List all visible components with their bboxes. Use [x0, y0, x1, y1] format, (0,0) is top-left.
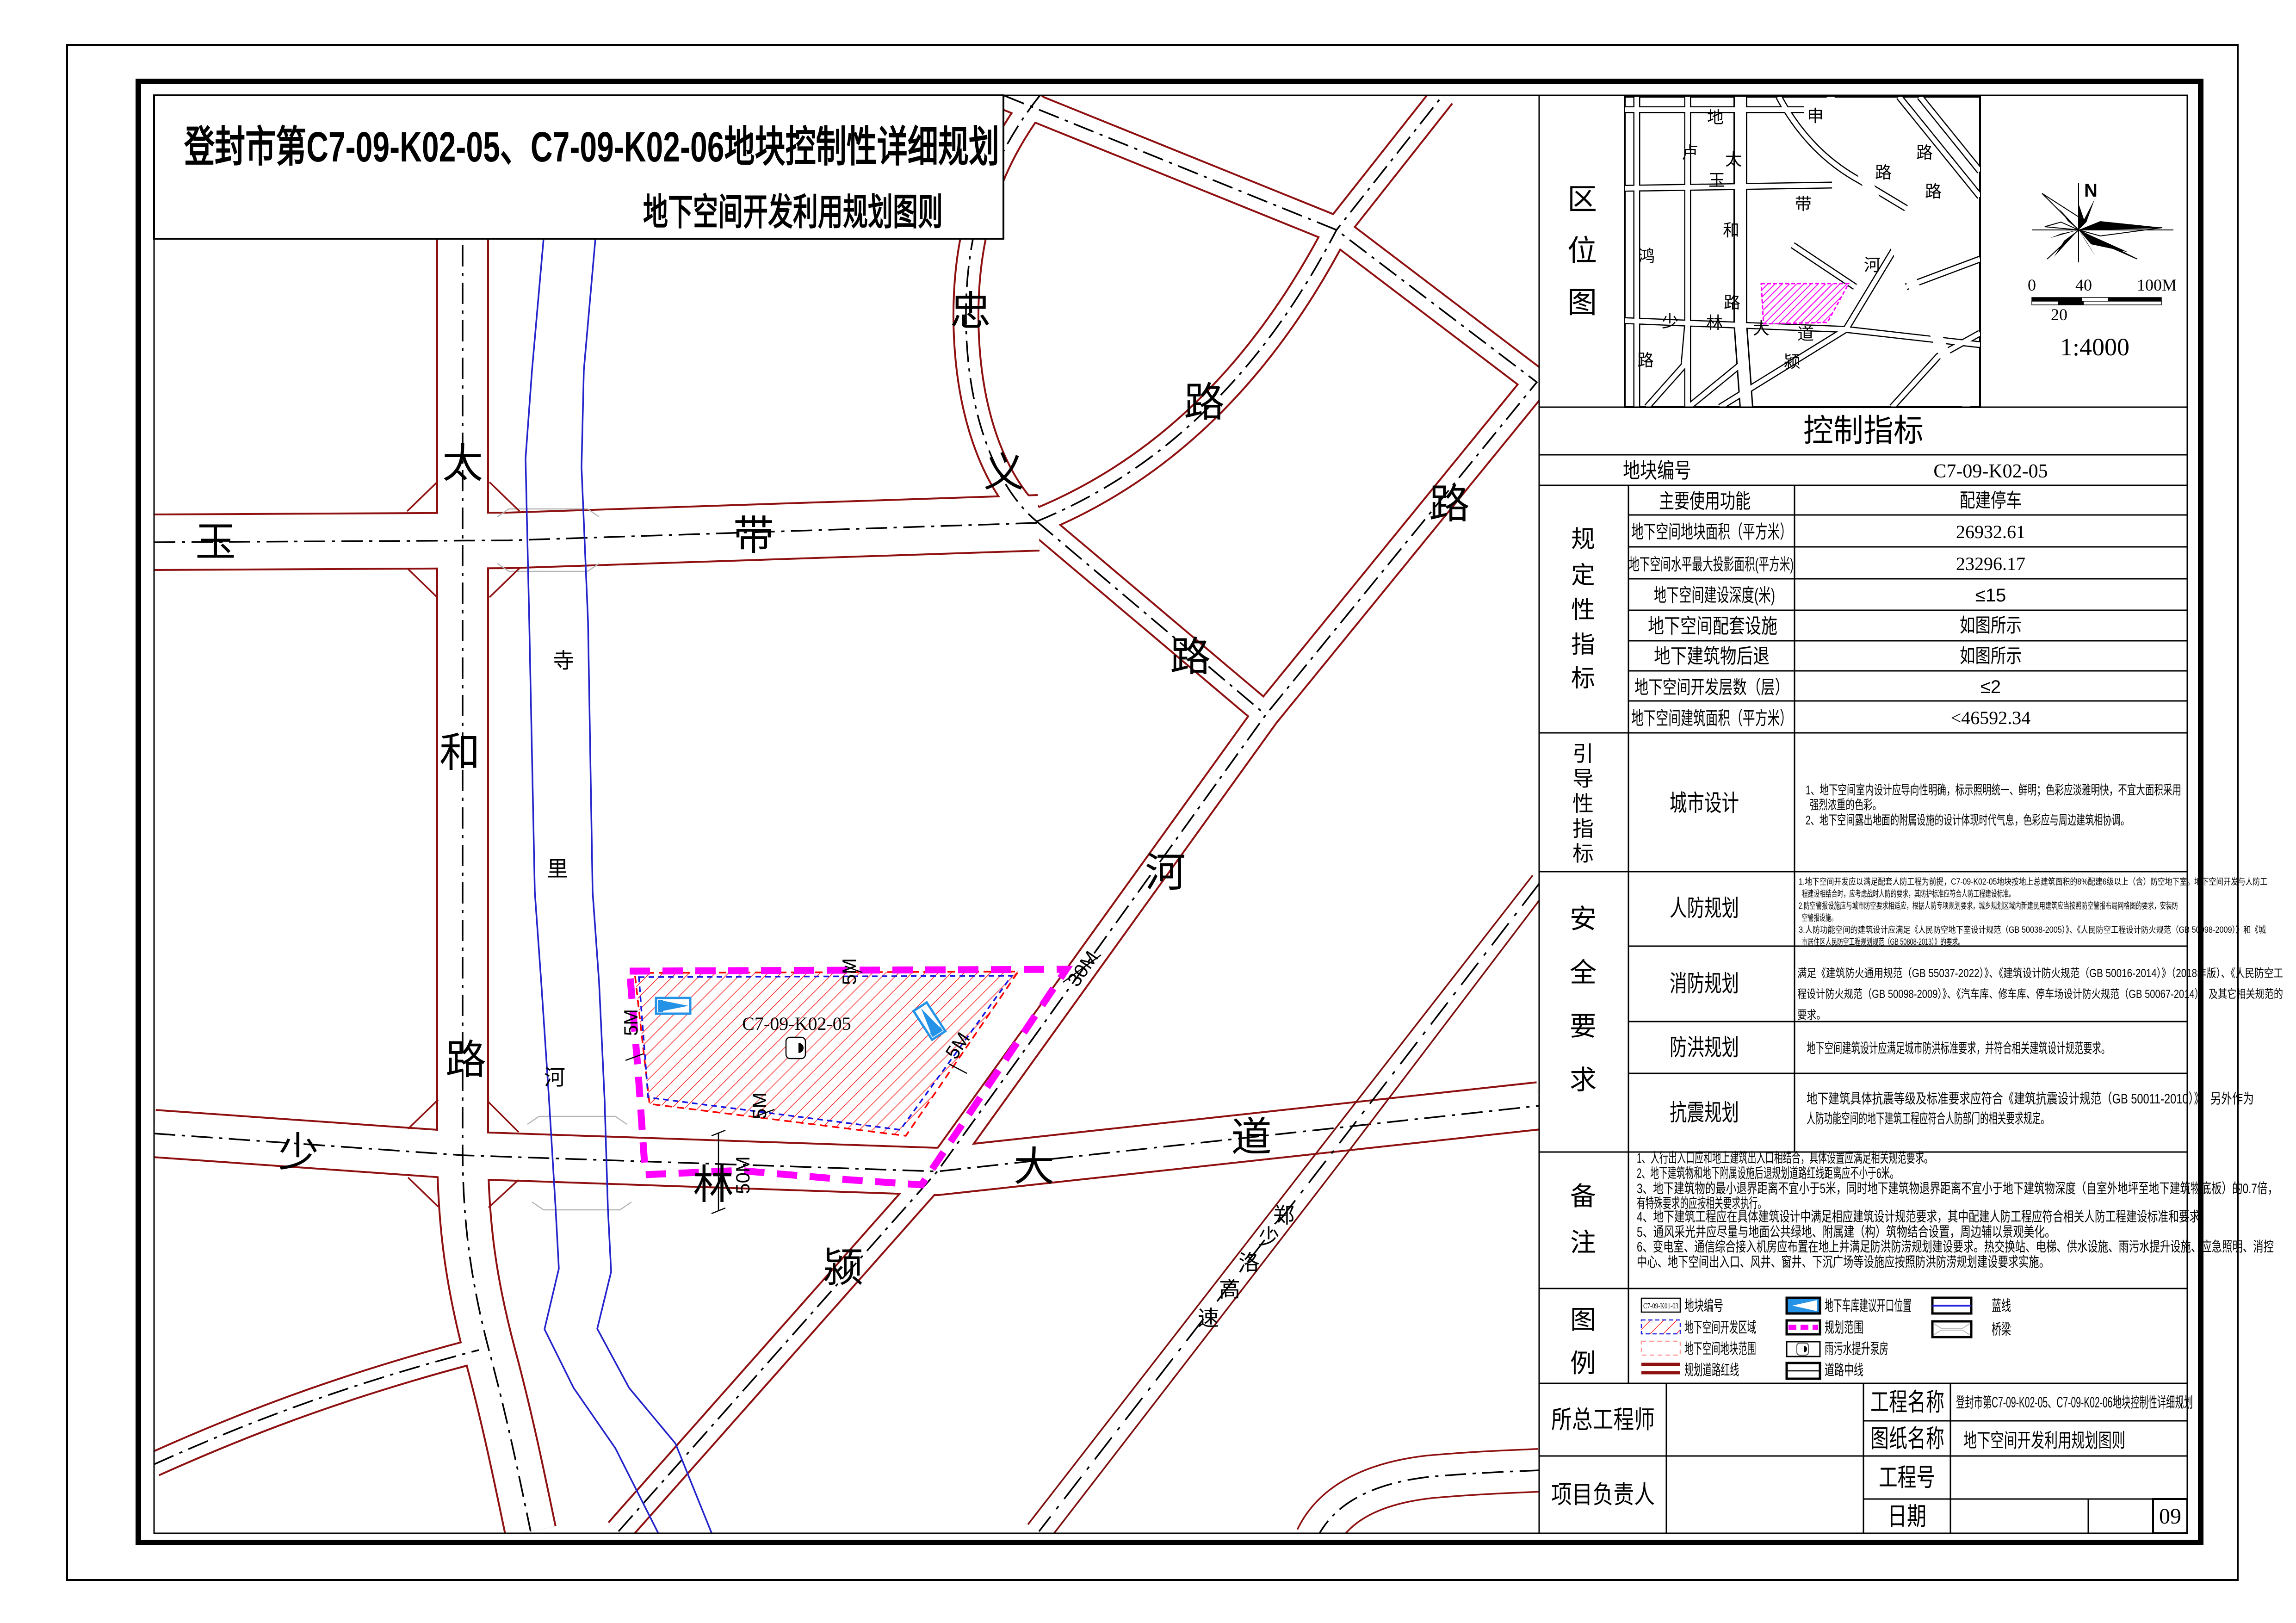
svg-text:高: 高	[1219, 1277, 1240, 1301]
svg-text:速: 速	[1198, 1306, 1219, 1330]
svg-text:市居住区人民防空工程规划规范（GB 50808-2013）》: 市居住区人民防空工程规划规范（GB 50808-2013）》的要求。	[1802, 937, 1964, 947]
svg-text:和: 和	[439, 730, 480, 775]
svg-text:路: 路	[1637, 351, 1654, 370]
svg-text:地下车库建议开口位置: 地下车库建议开口位置	[1825, 1297, 1912, 1314]
svg-text:地下空间开发利用规划图则: 地下空间开发利用规划图则	[643, 192, 943, 233]
svg-text:登封市第C7-09-K02-05、C7-09-K02-06地: 登封市第C7-09-K02-05、C7-09-K02-06地块控制性详细规划	[184, 124, 999, 171]
svg-text:规划范围: 规划范围	[1825, 1319, 1863, 1336]
svg-text:09: 09	[2159, 1504, 2181, 1529]
svg-text:太: 太	[442, 440, 483, 486]
svg-text:位: 位	[1567, 234, 1597, 267]
svg-text:桥梁: 桥梁	[1992, 1321, 2011, 1338]
svg-text:23296.17: 23296.17	[1956, 553, 2025, 574]
svg-text:颍: 颍	[1784, 352, 1801, 371]
svg-text:性: 性	[1571, 597, 1595, 624]
svg-text:河: 河	[1864, 255, 1881, 274]
svg-text:3、地下建筑物的最小退界距离不宜小于5米，同时地下建筑物退界: 3、地下建筑物的最小退界距离不宜小于5米，同时地下建筑物退界距离不宜小于地下建筑…	[1637, 1181, 2278, 1196]
svg-text:1.地下空间开发应以满足配套人防工程为前提，C7-09-K0: 1.地下空间开发应以满足配套人防工程为前提，C7-09-K02-05地块按地上总…	[1799, 877, 2267, 887]
svg-text:道路中线: 道路中线	[1825, 1362, 1863, 1378]
svg-text:控制指标: 控制指标	[1803, 413, 1924, 448]
svg-text:全: 全	[1570, 958, 1597, 988]
svg-text:配建停车: 配建停车	[1960, 489, 2022, 511]
svg-text:地下空间地块范围: 地下空间地块范围	[1684, 1340, 1756, 1357]
svg-text:图: 图	[1567, 286, 1597, 319]
svg-text:0: 0	[2028, 276, 2036, 294]
svg-text:抗震规划: 抗震规划	[1670, 1100, 1739, 1126]
svg-text:C7-09-K02-05: C7-09-K02-05	[742, 1013, 851, 1034]
svg-text:防洪规划: 防洪规划	[1670, 1035, 1739, 1060]
svg-text:地下空间建筑设计应满足城市防洪标准要求，并符合相关建筑设计规: 地下空间建筑设计应满足城市防洪标准要求，并符合相关建筑设计规范要求。	[1807, 1041, 2110, 1056]
svg-text:路: 路	[446, 1037, 486, 1083]
svg-text:<46592.34: <46592.34	[1951, 707, 2031, 728]
svg-text:地: 地	[1707, 108, 1724, 127]
svg-text:少: 少	[278, 1129, 319, 1175]
svg-text:6、变电室、通信综合接入机房应布置在地上并满足防洪防涝规划建: 6、变电室、通信综合接入机房应布置在地上并满足防洪防涝规划建设要求。热交换站、电…	[1637, 1239, 2274, 1255]
svg-text:引: 引	[1572, 742, 1594, 766]
svg-text:路: 路	[1916, 143, 1933, 162]
svg-text:少: 少	[1662, 312, 1678, 331]
svg-text:主要使用功能: 主要使用功能	[1659, 490, 1751, 513]
svg-text:人防功能空间的地下建筑工程应符合人防部门的相关要求规定。: 人防功能空间的地下建筑工程应符合人防部门的相关要求规定。	[1807, 1111, 2049, 1127]
svg-text:要求。: 要求。	[1797, 1009, 1826, 1022]
svg-text:标: 标	[1571, 665, 1595, 692]
svg-text:申: 申	[1807, 106, 1824, 125]
svg-text:程设计防火规范（GB 50098-2009）》、《汽车库、修: 程设计防火规范（GB 50098-2009）》、《汽车库、修车库、停车场设计防火…	[1797, 988, 2283, 1001]
svg-text:≤15: ≤15	[1975, 585, 2006, 606]
svg-text:4、地下建筑工程应在具体建筑设计中满足相应建筑设计规范要求，: 4、地下建筑工程应在具体建筑设计中满足相应建筑设计规范要求，其中配建人防工程应符…	[1637, 1209, 2210, 1225]
svg-text:林: 林	[1706, 313, 1723, 332]
svg-text:性: 性	[1572, 792, 1594, 816]
svg-text:程建设相结合时，应考虑战时人防的要求，其防护标准应符合人防工: 程建设相结合时，应考虑战时人防的要求，其防护标准应符合人防工程建设标准。	[1802, 889, 2015, 899]
svg-text:路: 路	[1184, 379, 1225, 425]
svg-text:≤2: ≤2	[1980, 677, 2001, 697]
svg-text:50M: 50M	[732, 1156, 754, 1194]
svg-text:城市设计: 城市设计	[1670, 790, 1739, 816]
svg-text:2、地下建筑物和地下附属设施后退规划道路红线距离应不小于6米: 2、地下建筑物和地下附属设施后退规划道路红线距离应不小于6米。	[1637, 1166, 1899, 1181]
svg-text:大: 大	[1014, 1144, 1054, 1189]
svg-text:地下空间开发层数（层）: 地下空间开发层数（层）	[1634, 677, 1789, 698]
svg-text:指: 指	[1571, 632, 1595, 658]
svg-text:地下空间建设深度(米): 地下空间建设深度(米)	[1654, 585, 1775, 606]
svg-text:郑: 郑	[1273, 1203, 1294, 1227]
svg-text:人防规划: 人防规划	[1670, 895, 1739, 921]
svg-text:地块编号: 地块编号	[1623, 458, 1691, 483]
svg-text:地下空间水平最大投影面积(平方米): 地下空间水平最大投影面积(平方米)	[1629, 555, 1794, 574]
svg-text:例: 例	[1570, 1349, 1596, 1378]
svg-text:20: 20	[2051, 305, 2067, 324]
svg-text:空警报设施。: 空警报设施。	[1802, 913, 1837, 923]
svg-text:满足《建筑防火通用规范（GB 55037-2022）》、《建: 满足《建筑防火通用规范（GB 55037-2022）》、《建筑设计防火规范（GB…	[1797, 967, 2283, 980]
svg-text:卢: 卢	[1682, 143, 1698, 162]
svg-text:太: 太	[1725, 150, 1742, 169]
svg-text:里: 里	[547, 857, 568, 881]
svg-text:定: 定	[1571, 562, 1595, 589]
svg-text:C7-09-K02-05: C7-09-K02-05	[1933, 461, 2048, 482]
svg-text:强烈浓重的色彩。: 强烈浓重的色彩。	[1810, 798, 1881, 812]
svg-text:地下空间配套设施: 地下空间配套设施	[1648, 615, 1777, 638]
svg-text:林: 林	[693, 1162, 734, 1208]
svg-text:规: 规	[1571, 526, 1595, 553]
svg-text:求: 求	[1570, 1065, 1597, 1095]
svg-text:项目负责人: 项目负责人	[1551, 1481, 1655, 1509]
svg-text:备: 备	[1570, 1182, 1596, 1211]
svg-text:地下空间建筑面积（平方米）: 地下空间建筑面积（平方米）	[1631, 708, 1792, 729]
svg-text:河: 河	[544, 1065, 565, 1090]
svg-text:日期: 日期	[1888, 1503, 1926, 1530]
svg-text:洛: 洛	[1238, 1251, 1260, 1275]
svg-text:玉: 玉	[195, 519, 236, 565]
svg-text:地下建筑具体抗震等级及标准要求应符合《建筑抗震设计规范（GB: 地下建筑具体抗震等级及标准要求应符合《建筑抗震设计规范（GB 50011-201…	[1807, 1091, 2254, 1107]
svg-text:指: 指	[1572, 817, 1594, 841]
svg-text:5M: 5M	[838, 958, 860, 985]
svg-text:安: 安	[1570, 904, 1597, 934]
svg-text:道: 道	[1797, 324, 1814, 343]
svg-text:图: 图	[1570, 1305, 1596, 1334]
svg-text:区: 区	[1567, 183, 1597, 216]
svg-text:地下建筑物后退: 地下建筑物后退	[1654, 645, 1770, 668]
svg-text:颍: 颍	[823, 1245, 864, 1290]
svg-text:地下空间地块面积（平方米）: 地下空间地块面积（平方米）	[1631, 522, 1792, 542]
svg-text:雨污水提升泵房: 雨污水提升泵房	[1825, 1340, 1888, 1357]
svg-text:和: 和	[1723, 221, 1739, 240]
svg-text:地下空间开发利用规划图则: 地下空间开发利用规划图则	[1963, 1430, 2125, 1451]
svg-text:忠: 忠	[950, 288, 991, 334]
svg-text:寺: 寺	[553, 649, 574, 673]
svg-text:路: 路	[1724, 293, 1740, 312]
svg-text:C7-09-K01-03: C7-09-K01-03	[1643, 1301, 1678, 1310]
svg-text:所总工程师: 所总工程师	[1551, 1406, 1655, 1434]
svg-text:规划道路红线: 规划道路红线	[1684, 1362, 1739, 1378]
svg-text:1、人行出入口应和地上建筑出入口相结合，具体设置应满足相关规: 1、人行出入口应和地上建筑出入口相结合，具体设置应满足相关规范要求。	[1637, 1151, 1933, 1166]
svg-text:消防规划: 消防规划	[1670, 971, 1739, 997]
svg-text:如图所示: 如图所示	[1960, 645, 2022, 667]
svg-text:3.人防功能空间的建筑设计应满足《人民防空地下室设计规范（G: 3.人防功能空间的建筑设计应满足《人民防空地下室设计规范（GB 50038-20…	[1799, 925, 2266, 935]
svg-text:如图所示: 如图所示	[1960, 614, 2022, 636]
svg-text:义: 义	[984, 449, 1024, 495]
svg-text:鸿: 鸿	[1638, 247, 1655, 266]
svg-text:N: N	[2084, 180, 2098, 201]
svg-text:2、地下空间露出地面的附属设施的设计体现时代气息，色彩应与周: 2、地下空间露出地面的附属设施的设计体现时代气息，色彩应与周边建筑相协调。	[1806, 813, 2129, 827]
svg-text:蓝线: 蓝线	[1992, 1297, 2011, 1314]
svg-text:1:4000: 1:4000	[2060, 333, 2129, 361]
svg-text:河: 河	[1145, 849, 1186, 895]
svg-text:5M: 5M	[620, 1009, 642, 1036]
svg-text:40: 40	[2075, 276, 2092, 294]
svg-text:路: 路	[1875, 163, 1892, 182]
svg-text:26932.61: 26932.61	[1956, 521, 2025, 542]
svg-text:导: 导	[1572, 767, 1594, 791]
svg-text:标: 标	[1572, 842, 1594, 866]
svg-text:注: 注	[1570, 1228, 1596, 1257]
svg-text:地下空间开发区域: 地下空间开发区域	[1684, 1319, 1756, 1336]
svg-text:地块编号: 地块编号	[1684, 1297, 1723, 1314]
svg-text:100M: 100M	[2137, 276, 2177, 294]
svg-text:中心、地下空间出入口、风井、窗井、下沉广场等设施应按照防洪防: 中心、地下空间出入口、风井、窗井、下沉广场等设施应按照防洪防涝规划建设要求实施。	[1637, 1255, 2049, 1270]
svg-text:工程号: 工程号	[1879, 1464, 1935, 1492]
svg-text:1、地下空间室内设计应导向性明确，标示照明统一、鲜明；色彩应: 1、地下空间室内设计应导向性明确，标示照明统一、鲜明；色彩应淡雅明快，不宜大面积…	[1806, 783, 2181, 797]
svg-text:路: 路	[1925, 182, 1942, 201]
svg-text:图纸名称: 图纸名称	[1870, 1425, 1944, 1453]
svg-text:登封市第C7-09-K02-05、C7-09-K02-06地: 登封市第C7-09-K02-05、C7-09-K02-06地块控制性详细规划	[1956, 1394, 2193, 1411]
svg-text:2.防空警报设施应与城市防空要求相适应，根据人防专项规划要求: 2.防空警报设施应与城市防空要求相适应，根据人防专项规划要求，城乡规划区域内新建…	[1799, 901, 2178, 911]
svg-text:5、通风采光井应尽量与地面公共绿地、附属建（构）筑物结合设置: 5、通风采光井应尽量与地面公共绿地、附属建（构）筑物结合设置，周边辅以景观美化。	[1637, 1225, 2055, 1240]
svg-text:少: 少	[1258, 1225, 1280, 1249]
svg-text:要: 要	[1570, 1011, 1597, 1041]
svg-text:工程名称: 工程名称	[1870, 1388, 1944, 1416]
svg-text:大: 大	[1753, 319, 1770, 338]
svg-text:玉: 玉	[1708, 171, 1725, 190]
svg-text:道: 道	[1231, 1114, 1272, 1160]
svg-text:带: 带	[1795, 194, 1812, 213]
svg-text:带: 带	[733, 513, 774, 558]
svg-text:路: 路	[1170, 634, 1211, 680]
svg-text:路: 路	[1429, 481, 1470, 527]
